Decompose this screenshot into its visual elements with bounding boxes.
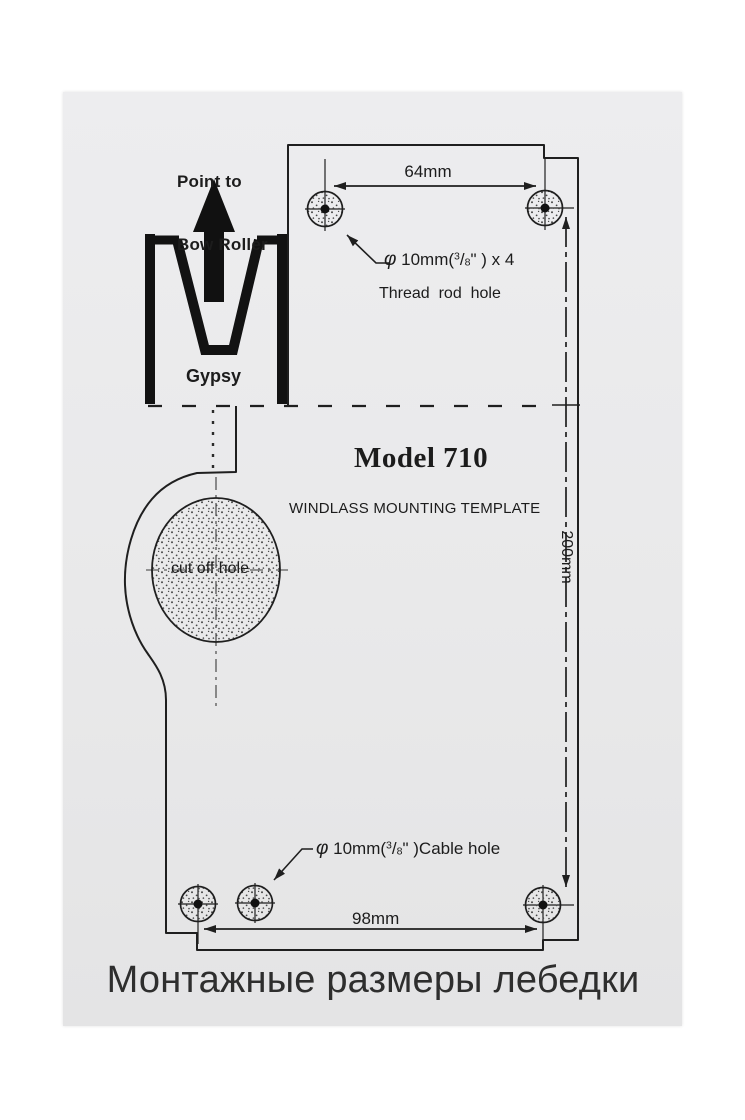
dim-98mm-label: 98mm bbox=[352, 909, 399, 929]
thread-rod-hole-bottom-left bbox=[178, 884, 218, 944]
diagram-linework bbox=[0, 0, 745, 1120]
point-to-line1: Point to bbox=[177, 171, 268, 192]
diameter-symbol: φ bbox=[316, 838, 328, 859]
cable-hole bbox=[235, 883, 275, 923]
cut-off-hole-label: cut off hole bbox=[171, 560, 249, 578]
thread-rod-hole-caption: Thread rod hole bbox=[379, 285, 501, 303]
thread-rod-hole-bottom-right bbox=[523, 885, 574, 943]
thread-rod-hole-note: φ 10mm(3/8" ) x 4 bbox=[384, 249, 514, 271]
gypsy-label: Gypsy bbox=[186, 366, 241, 387]
cable-hole-note: φ 10mm(3/8" )Cable hole bbox=[316, 838, 500, 860]
template-subtitle: WINDLASS MOUNTING TEMPLATE bbox=[289, 500, 540, 517]
thread-rod-hole-top-left bbox=[305, 159, 345, 231]
dim-200mm-label: 200mm bbox=[557, 528, 575, 586]
dim-64mm-label: 64mm bbox=[397, 162, 459, 182]
thread-note-leader bbox=[347, 235, 389, 263]
model-title: Model 710 bbox=[354, 442, 488, 475]
template-photo: Point to Bow Roller Gypsy 64mm φ 10mm(3/… bbox=[0, 0, 745, 1120]
point-to-bow-roller-label: Point to Bow Roller bbox=[177, 129, 268, 297]
cable-note-leader bbox=[274, 849, 313, 880]
footer-caption: Монтажные размеры лебедки bbox=[107, 959, 640, 1002]
point-to-line2: Bow Roller bbox=[177, 234, 268, 255]
diameter-symbol: φ bbox=[384, 249, 396, 270]
